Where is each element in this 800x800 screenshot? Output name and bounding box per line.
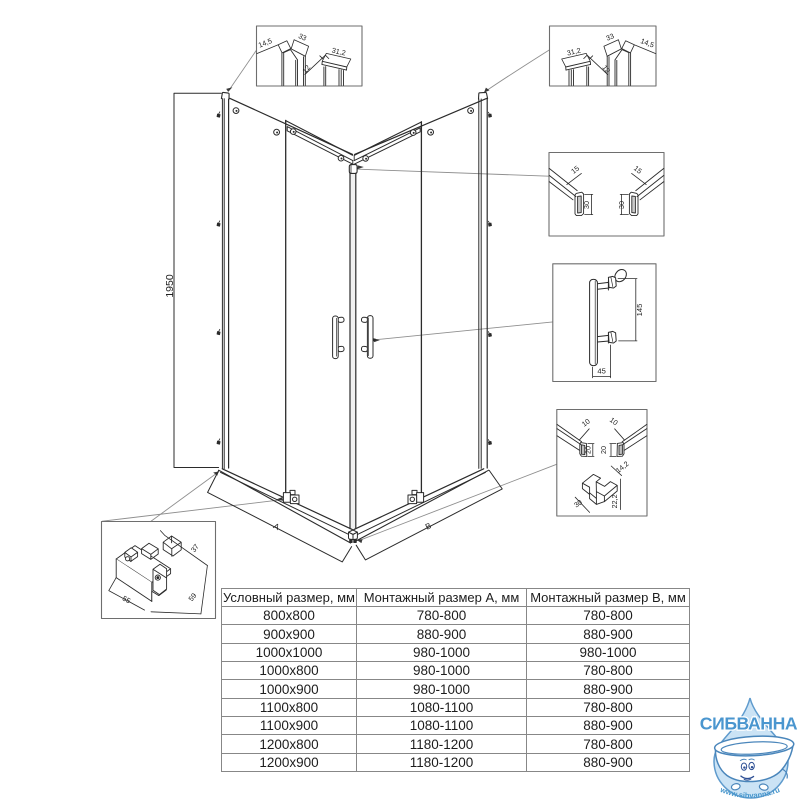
svg-text:СИБВАННА: СИБВАННА (700, 714, 798, 734)
